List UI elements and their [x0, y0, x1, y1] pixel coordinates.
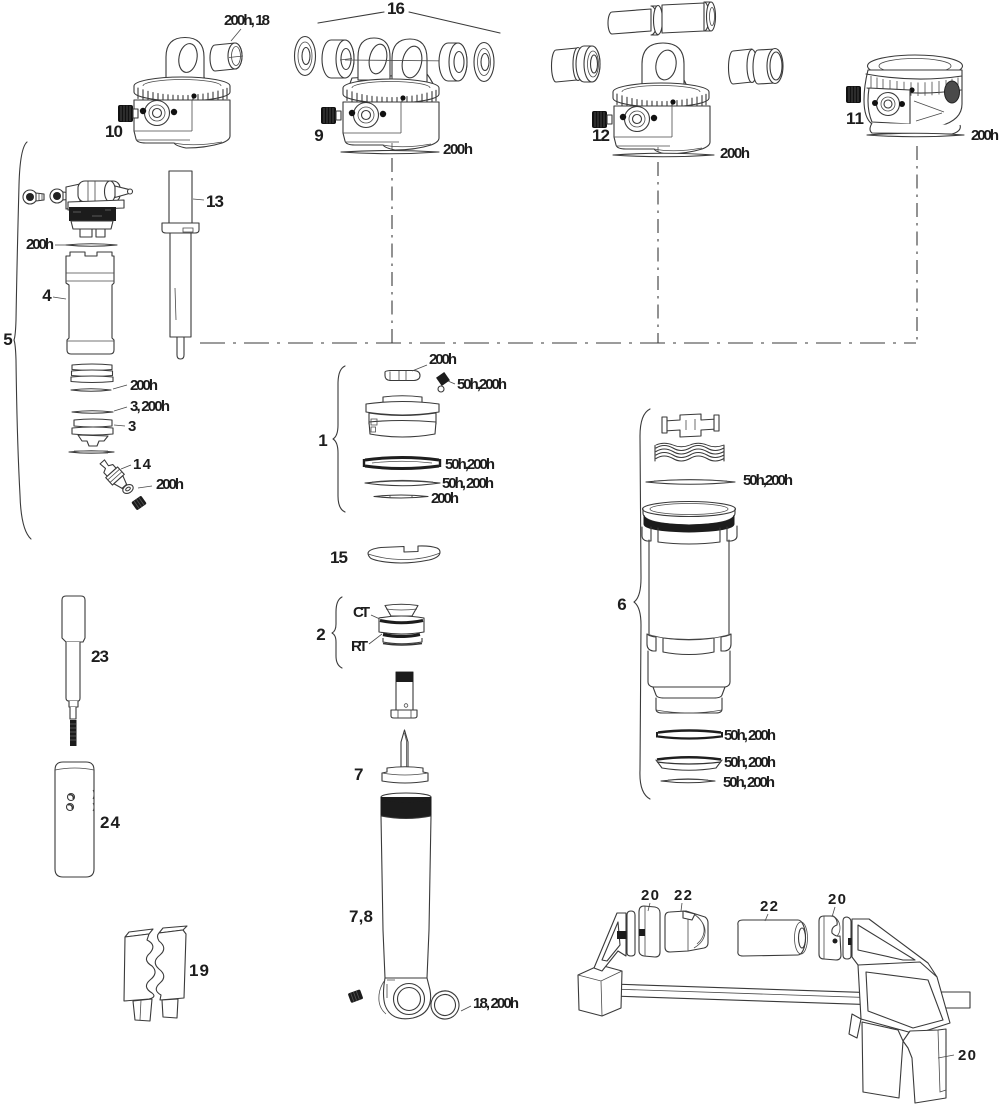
svg-text:50h, 200h: 50h, 200h [723, 774, 775, 791]
svg-text:19: 19 [189, 961, 209, 980]
svg-text:3: 3 [128, 418, 136, 435]
svg-text:7: 7 [354, 765, 363, 784]
svg-text:50h, 200h: 50h, 200h [724, 754, 776, 771]
svg-text:RT: RT [351, 638, 368, 655]
svg-text:CT: CT [353, 604, 370, 621]
svg-text:23: 23 [91, 647, 109, 666]
svg-text:1: 1 [318, 431, 327, 450]
svg-text:50h, 200h: 50h, 200h [724, 727, 776, 744]
svg-text:200h, 18: 200h, 18 [224, 12, 270, 29]
svg-text:9: 9 [314, 126, 323, 145]
svg-text:200h: 200h [971, 127, 999, 144]
svg-text:16: 16 [387, 0, 405, 18]
svg-text:20: 20 [828, 891, 846, 908]
svg-text:200h: 200h [443, 141, 473, 158]
svg-text:12: 12 [592, 126, 610, 145]
svg-text:200h: 200h [130, 377, 158, 394]
svg-text:3, 200h: 3, 200h [130, 398, 170, 415]
svg-text:15: 15 [330, 548, 348, 567]
svg-text:2: 2 [316, 625, 325, 644]
svg-text:10: 10 [105, 122, 123, 141]
svg-text:24: 24 [100, 813, 121, 832]
svg-text:50h,200h: 50h,200h [743, 472, 793, 489]
svg-text:11: 11 [846, 109, 864, 128]
svg-text:18, 200h: 18, 200h [473, 995, 519, 1012]
svg-text:200h: 200h [429, 351, 457, 368]
svg-text:13: 13 [206, 192, 224, 211]
svg-text:50h,200h: 50h,200h [457, 376, 507, 393]
svg-text:200h: 200h [156, 476, 184, 493]
svg-text:20: 20 [641, 887, 659, 904]
svg-text:50h,200h: 50h,200h [445, 456, 495, 473]
svg-text:6: 6 [617, 595, 626, 614]
svg-text:22: 22 [674, 887, 692, 904]
svg-text:14: 14 [133, 456, 152, 473]
svg-text:4: 4 [42, 286, 52, 305]
svg-text:200h: 200h [431, 490, 459, 507]
svg-text:20: 20 [958, 1047, 976, 1064]
svg-text:22: 22 [760, 898, 778, 915]
svg-text:200h: 200h [720, 145, 750, 162]
svg-text:5: 5 [3, 330, 12, 349]
svg-text:200h: 200h [26, 236, 54, 253]
svg-text:7,8: 7,8 [349, 907, 373, 926]
